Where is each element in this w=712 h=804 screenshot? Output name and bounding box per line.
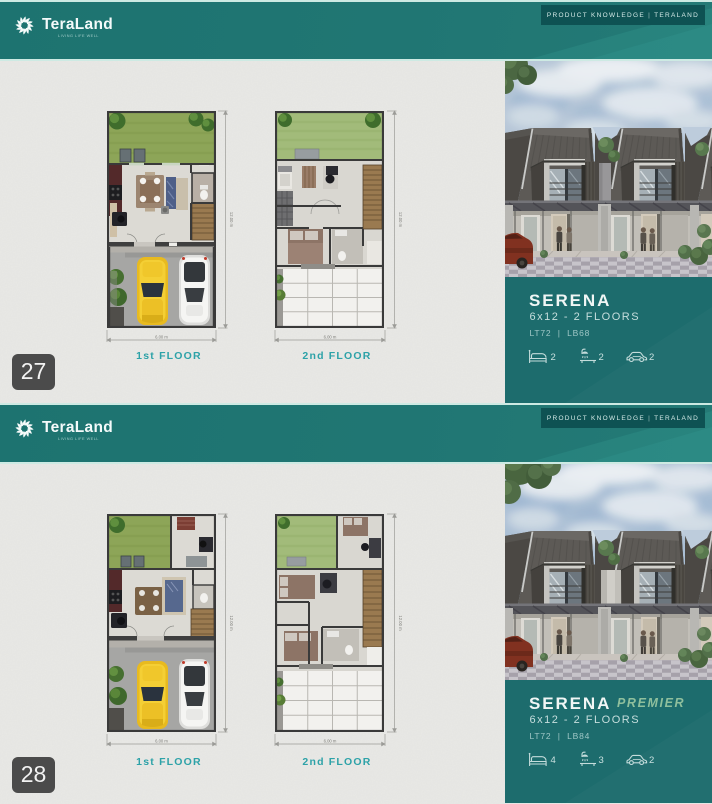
svg-text:6.00 m: 6.00 m bbox=[324, 739, 337, 744]
svg-text:12.00 m: 12.00 m bbox=[398, 212, 403, 228]
svg-text:12.00 m: 12.00 m bbox=[398, 615, 403, 631]
svg-text:6.00 m: 6.00 m bbox=[324, 335, 337, 340]
